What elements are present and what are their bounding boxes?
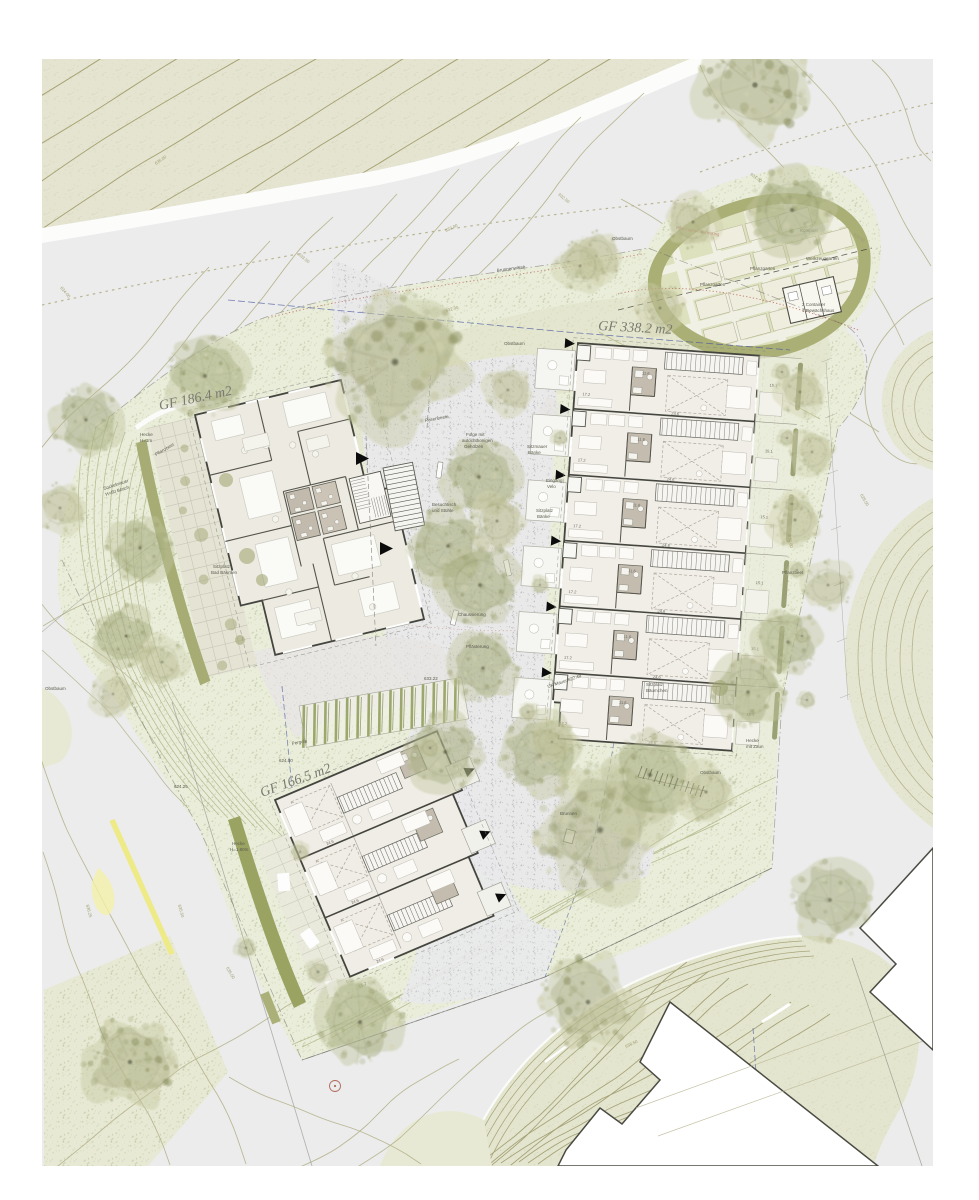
svg-text:H=1.80m: H=1.80m (230, 847, 249, 852)
svg-text:Hecke: Hecke (746, 738, 759, 743)
svg-text:Sitzplatz: Sitzplatz (536, 508, 554, 513)
svg-text:11.6: 11.6 (633, 502, 642, 508)
svg-text:Gehölzen: Gehölzen (464, 444, 484, 449)
svg-text:2 Container: 2 Container (802, 302, 826, 307)
svg-text:Obstbaum: Obstbaum (504, 341, 525, 346)
svg-text:15.1: 15.1 (765, 448, 774, 454)
svg-text:11.6: 11.6 (637, 436, 646, 442)
svg-text:17.2: 17.2 (578, 457, 587, 463)
svg-text:Obstbaum: Obstbaum (700, 770, 721, 775)
svg-text:Pflanzgarten: Pflanzgarten (750, 266, 776, 271)
svg-text:11.6: 11.6 (623, 634, 632, 640)
svg-text:624.25: 624.25 (174, 784, 188, 789)
svg-text:Sitzplatz: Sitzplatz (646, 682, 664, 687)
svg-text:15.1: 15.1 (756, 580, 765, 586)
svg-text:Obstbaum: Obstbaum (45, 686, 66, 691)
svg-text:mit Zaun: mit Zaun (746, 744, 764, 749)
svg-text:Eingang: Eingang (546, 478, 563, 483)
svg-text:Pflästerung: Pflästerung (466, 644, 489, 649)
svg-text:Pflanzbeet: Pflanzbeet (782, 570, 804, 575)
svg-text:H=1m: H=1m (140, 438, 152, 443)
svg-text:17.2: 17.2 (582, 391, 591, 397)
svg-text:Besuchtisch: Besuchtisch (432, 502, 457, 507)
svg-text:Bänke: Bänke (528, 450, 541, 455)
svg-text:Bänke: Bänke (537, 514, 550, 519)
svg-text:autochthonigen: autochthonigen (462, 438, 493, 443)
svg-text:Bad Bäumen: Bad Bäumen (211, 570, 238, 575)
svg-text:Velo: Velo (547, 484, 556, 489)
svg-text:17.2: 17.2 (573, 523, 582, 529)
svg-text:Hecke: Hecke (140, 432, 153, 437)
svg-text:624.00: 624.00 (279, 758, 293, 763)
svg-text:Sitzmauer: Sitzmauer (527, 444, 548, 449)
svg-text:Wiese: Wiese (938, 486, 951, 491)
svg-text:Sitzplatz: Sitzplatz (213, 564, 231, 569)
svg-text:11.6: 11.6 (628, 568, 637, 574)
svg-text:633.22: 633.22 (424, 676, 438, 681)
svg-text:Pflanzgarten: Pflanzgarten (700, 282, 726, 287)
svg-text:Chaussierung: Chaussierung (458, 612, 486, 617)
svg-text:und Stühle: und Stühle (432, 508, 454, 513)
svg-text:Bäumchen: Bäumchen (646, 688, 668, 693)
svg-text:17.2: 17.2 (568, 589, 577, 595)
svg-text:Folge mit: Folge mit (466, 432, 485, 437)
svg-text:Hecke: Hecke (232, 841, 245, 846)
svg-text:11.6: 11.6 (642, 371, 651, 377)
svg-text:Brunnen: Brunnen (560, 811, 578, 816)
svg-text:17.2: 17.2 (564, 655, 573, 661)
svg-text:11.6: 11.6 (619, 700, 628, 706)
svg-text:Obstbaum: Obstbaum (612, 236, 633, 241)
